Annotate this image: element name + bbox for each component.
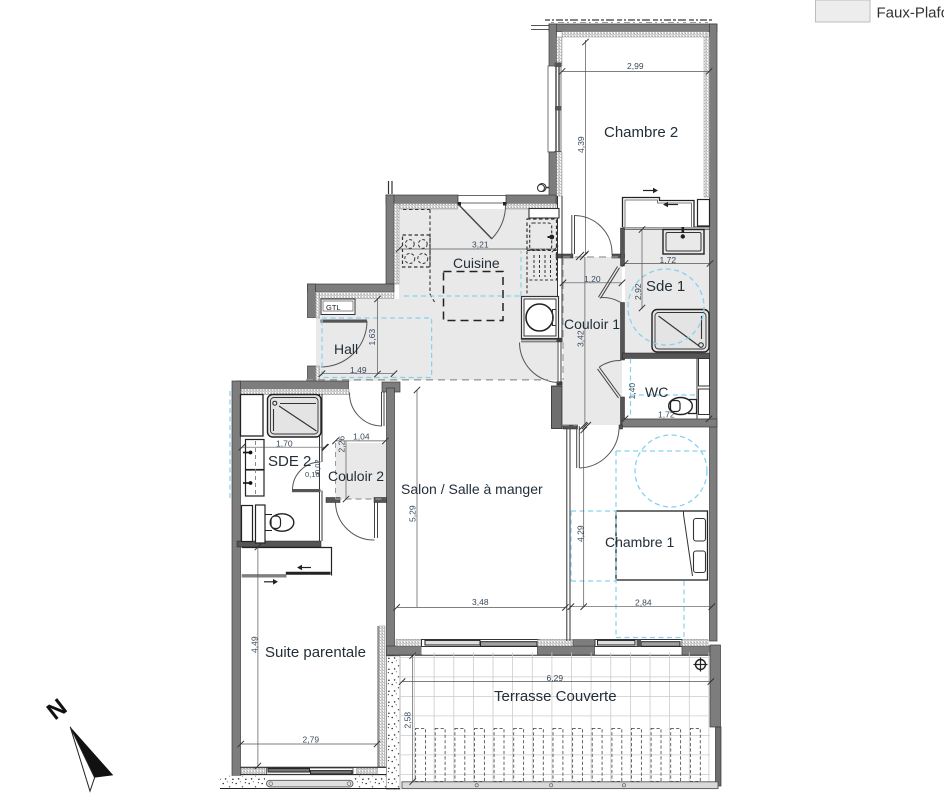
svg-text:Couloir 2: Couloir 2: [328, 468, 384, 484]
svg-text:4,39: 4,39: [576, 136, 586, 153]
svg-text:Cuisine: Cuisine: [453, 255, 500, 271]
svg-text:2,26: 2,26: [337, 436, 347, 453]
svg-text:Hall: Hall: [334, 341, 358, 357]
svg-text:Faux-Plafond: Faux-Plafond: [877, 5, 944, 22]
svg-text:1,63: 1,63: [367, 329, 377, 346]
svg-text:GTL: GTL: [326, 303, 341, 312]
svg-text:1,72: 1,72: [658, 410, 675, 420]
svg-text:3,21: 3,21: [472, 240, 489, 250]
svg-text:2,79: 2,79: [303, 734, 320, 744]
svg-text:2,92: 2,92: [633, 283, 643, 300]
svg-text:1,04: 1,04: [353, 432, 370, 442]
svg-text:2,99: 2,99: [627, 61, 644, 71]
svg-text:4,29: 4,29: [576, 525, 586, 542]
svg-text:0,02: 0,02: [313, 459, 322, 474]
svg-text:3,42: 3,42: [576, 330, 586, 347]
svg-text:SDE 2: SDE 2: [268, 453, 311, 470]
svg-text:5,29: 5,29: [408, 505, 418, 522]
svg-text:1,70: 1,70: [276, 438, 293, 448]
svg-text:4,49: 4,49: [250, 636, 260, 653]
svg-text:Suite parentale: Suite parentale: [265, 644, 366, 661]
svg-text:2,58: 2,58: [403, 712, 413, 729]
svg-text:1,40: 1,40: [627, 383, 637, 400]
svg-text:Sde 1: Sde 1: [646, 278, 685, 295]
svg-text:Salon / Salle à manger: Salon / Salle à manger: [401, 481, 543, 497]
svg-text:1,49: 1,49: [350, 365, 367, 375]
svg-text:1,20: 1,20: [584, 274, 601, 284]
svg-text:1,72: 1,72: [660, 255, 677, 265]
svg-text:Chambre 2: Chambre 2: [604, 124, 678, 141]
svg-text:WC: WC: [645, 384, 668, 400]
svg-text:3,48: 3,48: [472, 597, 489, 607]
svg-text:Couloir 1: Couloir 1: [564, 316, 620, 332]
svg-text:Terrasse Couverte: Terrasse Couverte: [494, 688, 617, 705]
svg-text:2,84: 2,84: [635, 598, 652, 608]
svg-text:6,29: 6,29: [547, 673, 564, 683]
svg-text:Chambre 1: Chambre 1: [605, 534, 674, 550]
